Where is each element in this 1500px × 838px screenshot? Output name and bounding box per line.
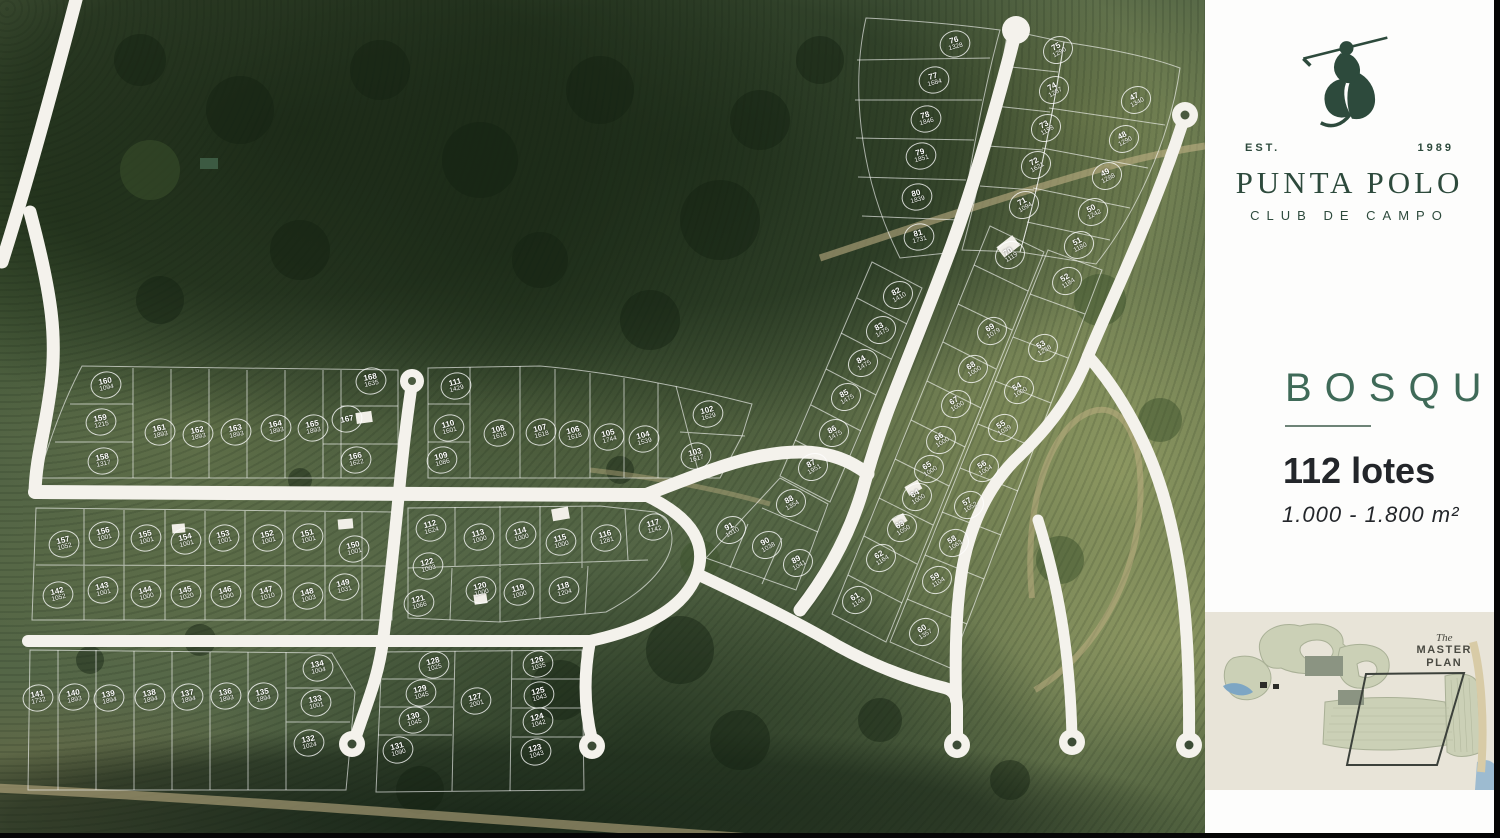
- lot-marker-160[interactable]: 1601094: [88, 369, 124, 402]
- lot-area: 1000: [219, 593, 235, 603]
- lot-marker-127[interactable]: 1272001: [458, 684, 495, 718]
- lot-marker-61[interactable]: 611146: [837, 580, 878, 619]
- lot-marker-104[interactable]: 1041539: [626, 422, 663, 456]
- lot-area: 1043: [529, 751, 545, 761]
- lot-marker-53[interactable]: 531238: [1023, 328, 1064, 367]
- lot-marker-154[interactable]: 1541001: [168, 524, 205, 558]
- lot-marker-57[interactable]: 571052: [949, 485, 990, 524]
- lot-area: 1066: [412, 602, 428, 612]
- lot-area: 1851: [914, 155, 930, 165]
- lot-marker-102[interactable]: 1021629: [690, 397, 727, 431]
- lot-area: 1052: [51, 594, 67, 604]
- lot-marker-131[interactable]: 1311090: [380, 733, 417, 767]
- lot-marker-54[interactable]: 541000: [999, 370, 1040, 409]
- lot-area: 1894: [256, 695, 272, 704]
- lot-marker-143[interactable]: 1431001: [85, 573, 122, 607]
- lot-area: 1001: [179, 540, 195, 550]
- lot-area: 1618: [534, 431, 550, 441]
- lot-marker-75[interactable]: 751290: [1038, 31, 1078, 70]
- lot-marker-151[interactable]: 1511001: [290, 520, 327, 554]
- lot-area: 1618: [492, 432, 508, 442]
- lot-area: 1281: [599, 537, 615, 547]
- lot-area: 1622: [349, 459, 365, 468]
- lot-marker-73[interactable]: 731198: [1026, 109, 1066, 148]
- lot-area: 1893: [229, 431, 245, 440]
- lot-area: 1328: [948, 43, 964, 53]
- lot-marker-69[interactable]: 691079: [972, 311, 1013, 350]
- lot-marker-158[interactable]: 1581317: [85, 445, 121, 478]
- lot-area: 1000: [139, 593, 155, 603]
- lot-marker-140[interactable]: 1401893: [56, 681, 92, 714]
- lot-marker-56[interactable]: 561004: [964, 448, 1005, 487]
- lot-area: 1010: [260, 593, 276, 603]
- section-title: BOSQUE: [1285, 366, 1500, 411]
- lot-marker-157[interactable]: 1571052: [46, 527, 83, 561]
- lot-area: 1001: [309, 702, 325, 711]
- section-title-underline: [1285, 425, 1371, 427]
- lot-marker-117[interactable]: 1171142: [636, 510, 673, 544]
- lot-marker-81[interactable]: 811731: [901, 220, 938, 254]
- lot-area: 1317: [96, 460, 112, 469]
- lot-marker-163[interactable]: 1631893: [218, 416, 254, 449]
- lot-marker-130[interactable]: 1301045: [396, 703, 433, 737]
- lot-marker-85[interactable]: 851475: [826, 378, 866, 417]
- lot-area: 1001: [217, 537, 233, 547]
- lot-area: 1624: [424, 527, 440, 537]
- lot-area: 1024: [302, 742, 318, 751]
- lot-area: 1000: [512, 591, 528, 601]
- lot-area: 1629: [701, 413, 717, 423]
- lot-marker-139[interactable]: 1391894: [91, 682, 127, 715]
- lot-marker-144[interactable]: 1441000: [128, 577, 165, 611]
- brand-title: PUNTA POLO: [1205, 165, 1494, 201]
- lot-area: 1043: [532, 694, 548, 704]
- bottom-frame-bar: [0, 833, 1500, 838]
- lot-marker-133[interactable]: 1331001: [298, 687, 334, 720]
- lot-marker-146[interactable]: 1461000: [208, 577, 245, 611]
- lot-marker-79[interactable]: 791851: [903, 139, 940, 173]
- lot-area: 1893: [306, 427, 322, 436]
- lot-marker-145[interactable]: 1451020: [168, 577, 205, 611]
- lot-area: 1001: [96, 589, 112, 599]
- lot-marker-89[interactable]: 891041: [778, 544, 818, 583]
- bosque-sector-masterplan-page: 7613287716847818467918518018398117317512…: [0, 0, 1500, 838]
- lots-count: 112 lotes: [1283, 450, 1435, 492]
- lot-marker-58[interactable]: 581063: [934, 523, 975, 562]
- lot-marker-109[interactable]: 1091086: [424, 443, 461, 477]
- lot-marker-49[interactable]: 491288: [1087, 157, 1127, 195]
- lot-marker-132[interactable]: 1321024: [291, 727, 327, 760]
- lot-marker-114[interactable]: 1141000: [503, 518, 540, 552]
- lot-marker-77[interactable]: 771684: [916, 63, 953, 97]
- lot-marker-60[interactable]: 601357: [904, 612, 945, 651]
- lot-marker-120[interactable]: 1201000: [463, 573, 500, 607]
- lot-marker-105[interactable]: 1051744: [591, 420, 628, 454]
- lot-area: 1000: [514, 534, 530, 544]
- lot-marker-142[interactable]: 1421052: [40, 578, 77, 612]
- lot-area: 1684: [927, 79, 943, 89]
- lot-area: 1004: [311, 667, 327, 676]
- lot-marker-103[interactable]: 1031617: [678, 439, 715, 473]
- lot-marker-51[interactable]: 511180: [1059, 226, 1099, 264]
- brand-subtitle: CLUB DE CAMPO: [1205, 208, 1494, 223]
- lot-marker-68[interactable]: 681000: [953, 349, 994, 388]
- lot-marker-118[interactable]: 1181204: [546, 573, 583, 607]
- lot-marker-80[interactable]: 801839: [899, 180, 936, 214]
- lot-area: 1894: [143, 696, 159, 705]
- lot-marker-167[interactable]: 167: [329, 403, 365, 436]
- year-label: 1989: [1418, 142, 1454, 154]
- lot-area: 1893: [67, 696, 83, 705]
- lot-area: 1003: [421, 565, 437, 575]
- lot-marker-113[interactable]: 1131000: [461, 520, 498, 554]
- lot-area: 1894: [102, 697, 118, 706]
- lot-marker-87[interactable]: 871951: [793, 448, 833, 487]
- master-plan-label: The MASTER PLAN: [1417, 632, 1472, 669]
- lot-area: 1893: [219, 695, 235, 704]
- master-plan-line1: MASTER: [1417, 644, 1472, 657]
- lot-marker-108[interactable]: 1081618: [481, 416, 518, 450]
- lot-marker-135[interactable]: 1351894: [245, 680, 281, 713]
- lot-area: 1893: [269, 427, 285, 436]
- lot-marker-70[interactable]: 701119: [990, 235, 1031, 274]
- lot-area: 1732: [31, 697, 47, 706]
- lot-area: 1893: [191, 433, 207, 442]
- lot-marker-161[interactable]: 1611893: [142, 416, 178, 449]
- lot-marker-121[interactable]: 1211066: [401, 586, 438, 620]
- lot-area: 1035: [531, 663, 547, 673]
- lot-marker-126[interactable]: 1261035: [520, 647, 557, 681]
- master-plan-the: The: [1417, 632, 1472, 644]
- lot-marker-141[interactable]: 1411732: [20, 682, 56, 715]
- lot-marker-110[interactable]: 1101601: [431, 411, 468, 445]
- lot-marker-123[interactable]: 1231043: [518, 735, 555, 769]
- lot-marker-84[interactable]: 841475: [843, 344, 883, 383]
- lot-size-range: 1.000 - 1.800 m²: [1282, 502, 1459, 528]
- lot-marker-47[interactable]: 471340: [1116, 81, 1156, 119]
- lot-marker-147[interactable]: 1471010: [249, 577, 286, 611]
- lot-area: 1001: [301, 536, 317, 546]
- established-row: EST. 1989: [1245, 142, 1454, 154]
- lot-area: 1846: [919, 118, 935, 128]
- lot-marker-78[interactable]: 781846: [908, 102, 945, 136]
- lot-marker-148[interactable]: 1481003: [290, 579, 327, 613]
- lot-marker-124[interactable]: 1241042: [520, 704, 557, 738]
- lot-marker-63[interactable]: 631050: [882, 508, 923, 547]
- lot-marker-71[interactable]: 711094: [1004, 186, 1044, 225]
- lot-area: 1090: [391, 749, 407, 759]
- lot-area: 1025: [427, 664, 443, 674]
- lot-area: 1894: [181, 696, 197, 705]
- master-plan-line2: PLAN: [1417, 657, 1472, 670]
- lot-marker-62[interactable]: 621164: [861, 538, 902, 577]
- lot-area: 1215: [94, 421, 110, 430]
- polo-player-icon: [1270, 12, 1430, 152]
- est-label: EST.: [1245, 142, 1280, 154]
- lot-marker-64[interactable]: 641000: [897, 477, 938, 516]
- lot-marker-115[interactable]: 1151000: [543, 525, 580, 559]
- lot-area: 1003: [301, 595, 317, 605]
- lot-area: 1020: [179, 593, 195, 603]
- lot-marker-59[interactable]: 591104: [917, 560, 958, 599]
- lot-marker-152[interactable]: 1521001: [250, 521, 287, 555]
- lot-area: 1731: [912, 236, 928, 246]
- lot-marker-119[interactable]: 1191000: [501, 575, 538, 609]
- lot-area: 2001: [469, 700, 485, 710]
- lot-marker-48[interactable]: 481290: [1104, 120, 1144, 158]
- lot-marker-111[interactable]: 1111429: [438, 369, 475, 403]
- lot-marker-155[interactable]: 1551001: [128, 521, 165, 555]
- lot-marker-164[interactable]: 1641893: [258, 412, 294, 445]
- lot-marker-168[interactable]: 1681635: [353, 365, 389, 398]
- lot-number: 167: [340, 414, 355, 425]
- lot-marker-91[interactable]: 911010: [711, 511, 751, 550]
- lot-marker-136[interactable]: 1361893: [208, 680, 244, 713]
- lot-area: 1539: [637, 438, 653, 448]
- lot-marker-159[interactable]: 1591215: [83, 406, 119, 439]
- lot-marker-138[interactable]: 1381894: [132, 681, 168, 714]
- lot-area: 1839: [910, 196, 926, 206]
- lot-marker-50[interactable]: 501242: [1073, 193, 1113, 231]
- lot-area: 1042: [531, 720, 547, 730]
- lot-area: 1001: [347, 548, 363, 558]
- lot-area: 1618: [567, 433, 583, 443]
- lot-marker-137[interactable]: 1371894: [170, 681, 206, 714]
- lot-marker-88[interactable]: 881354: [771, 484, 811, 523]
- lot-area: 1094: [99, 384, 115, 393]
- lot-area: 1000: [554, 541, 570, 551]
- lot-area: 1086: [435, 459, 451, 469]
- lot-marker-76[interactable]: 761328: [937, 27, 974, 61]
- punta-polo-logo: [1270, 12, 1430, 152]
- lot-marker-106[interactable]: 1061618: [556, 417, 593, 451]
- lot-area: 1045: [407, 719, 423, 729]
- lot-area: 1001: [261, 537, 277, 547]
- lot-area: 1031: [337, 586, 353, 596]
- lot-marker-150[interactable]: 1501001: [336, 532, 373, 566]
- lot-marker-128[interactable]: 1281025: [416, 648, 453, 682]
- lot-marker-116[interactable]: 1161281: [588, 521, 625, 555]
- lot-marker-122[interactable]: 1221003: [410, 549, 447, 583]
- lot-marker-86[interactable]: 861475: [814, 414, 854, 453]
- lot-area: 1744: [602, 436, 618, 446]
- lot-marker-129[interactable]: 1291045: [403, 676, 440, 710]
- lot-markers-layer: 7613287716847818467918518018398117317512…: [0, 0, 1205, 833]
- lot-marker-134[interactable]: 1341004: [300, 652, 336, 685]
- master-plan-inset[interactable]: The MASTER PLAN: [1205, 612, 1494, 790]
- lot-marker-153[interactable]: 1531001: [206, 521, 243, 555]
- lot-marker-149[interactable]: 1491031: [326, 570, 363, 604]
- lot-marker-125[interactable]: 1251043: [521, 678, 558, 712]
- lot-marker-67[interactable]: 671000: [936, 384, 977, 423]
- lot-marker-52[interactable]: 521184: [1047, 261, 1088, 300]
- lot-marker-72[interactable]: 721621: [1016, 146, 1056, 185]
- lot-marker-107[interactable]: 1071618: [523, 415, 560, 449]
- lot-marker-156[interactable]: 1561001: [86, 518, 123, 552]
- lot-marker-66[interactable]: 661000: [921, 420, 962, 459]
- lot-area: 1142: [647, 526, 662, 536]
- lot-marker-90[interactable]: 901038: [747, 526, 787, 565]
- lot-marker-165[interactable]: 1651893: [295, 412, 331, 445]
- lot-area: 1000: [472, 536, 488, 546]
- lot-area: 1001: [139, 537, 155, 547]
- lot-area: 1045: [414, 692, 430, 702]
- lot-marker-166[interactable]: 1661622: [338, 444, 374, 477]
- lot-marker-162[interactable]: 1621893: [180, 418, 216, 451]
- lot-area: 1000: [474, 589, 490, 599]
- lot-marker-55[interactable]: 551039: [983, 408, 1024, 447]
- lot-area: 1601: [442, 427, 458, 437]
- lot-marker-82[interactable]: 821410: [878, 276, 918, 315]
- lot-marker-74[interactable]: 741287: [1034, 71, 1074, 110]
- lot-area: 1617: [689, 455, 705, 465]
- lot-area: 1052: [57, 543, 73, 553]
- lot-area: 1204: [557, 589, 573, 599]
- lot-area: 1001: [97, 534, 113, 544]
- lot-area: 1635: [364, 380, 380, 389]
- lot-marker-83[interactable]: 831475: [861, 311, 901, 350]
- aerial-map[interactable]: 7613287716847818467918518018398117317512…: [0, 0, 1205, 833]
- lot-area: 1429: [449, 385, 465, 395]
- lot-area: 1893: [153, 431, 169, 440]
- lot-marker-112[interactable]: 1121624: [413, 511, 450, 545]
- sidebar: EST. 1989 PUNTA POLO CLUB DE CAMPO BOSQU…: [1205, 0, 1494, 833]
- right-frame-bar: [1494, 0, 1500, 838]
